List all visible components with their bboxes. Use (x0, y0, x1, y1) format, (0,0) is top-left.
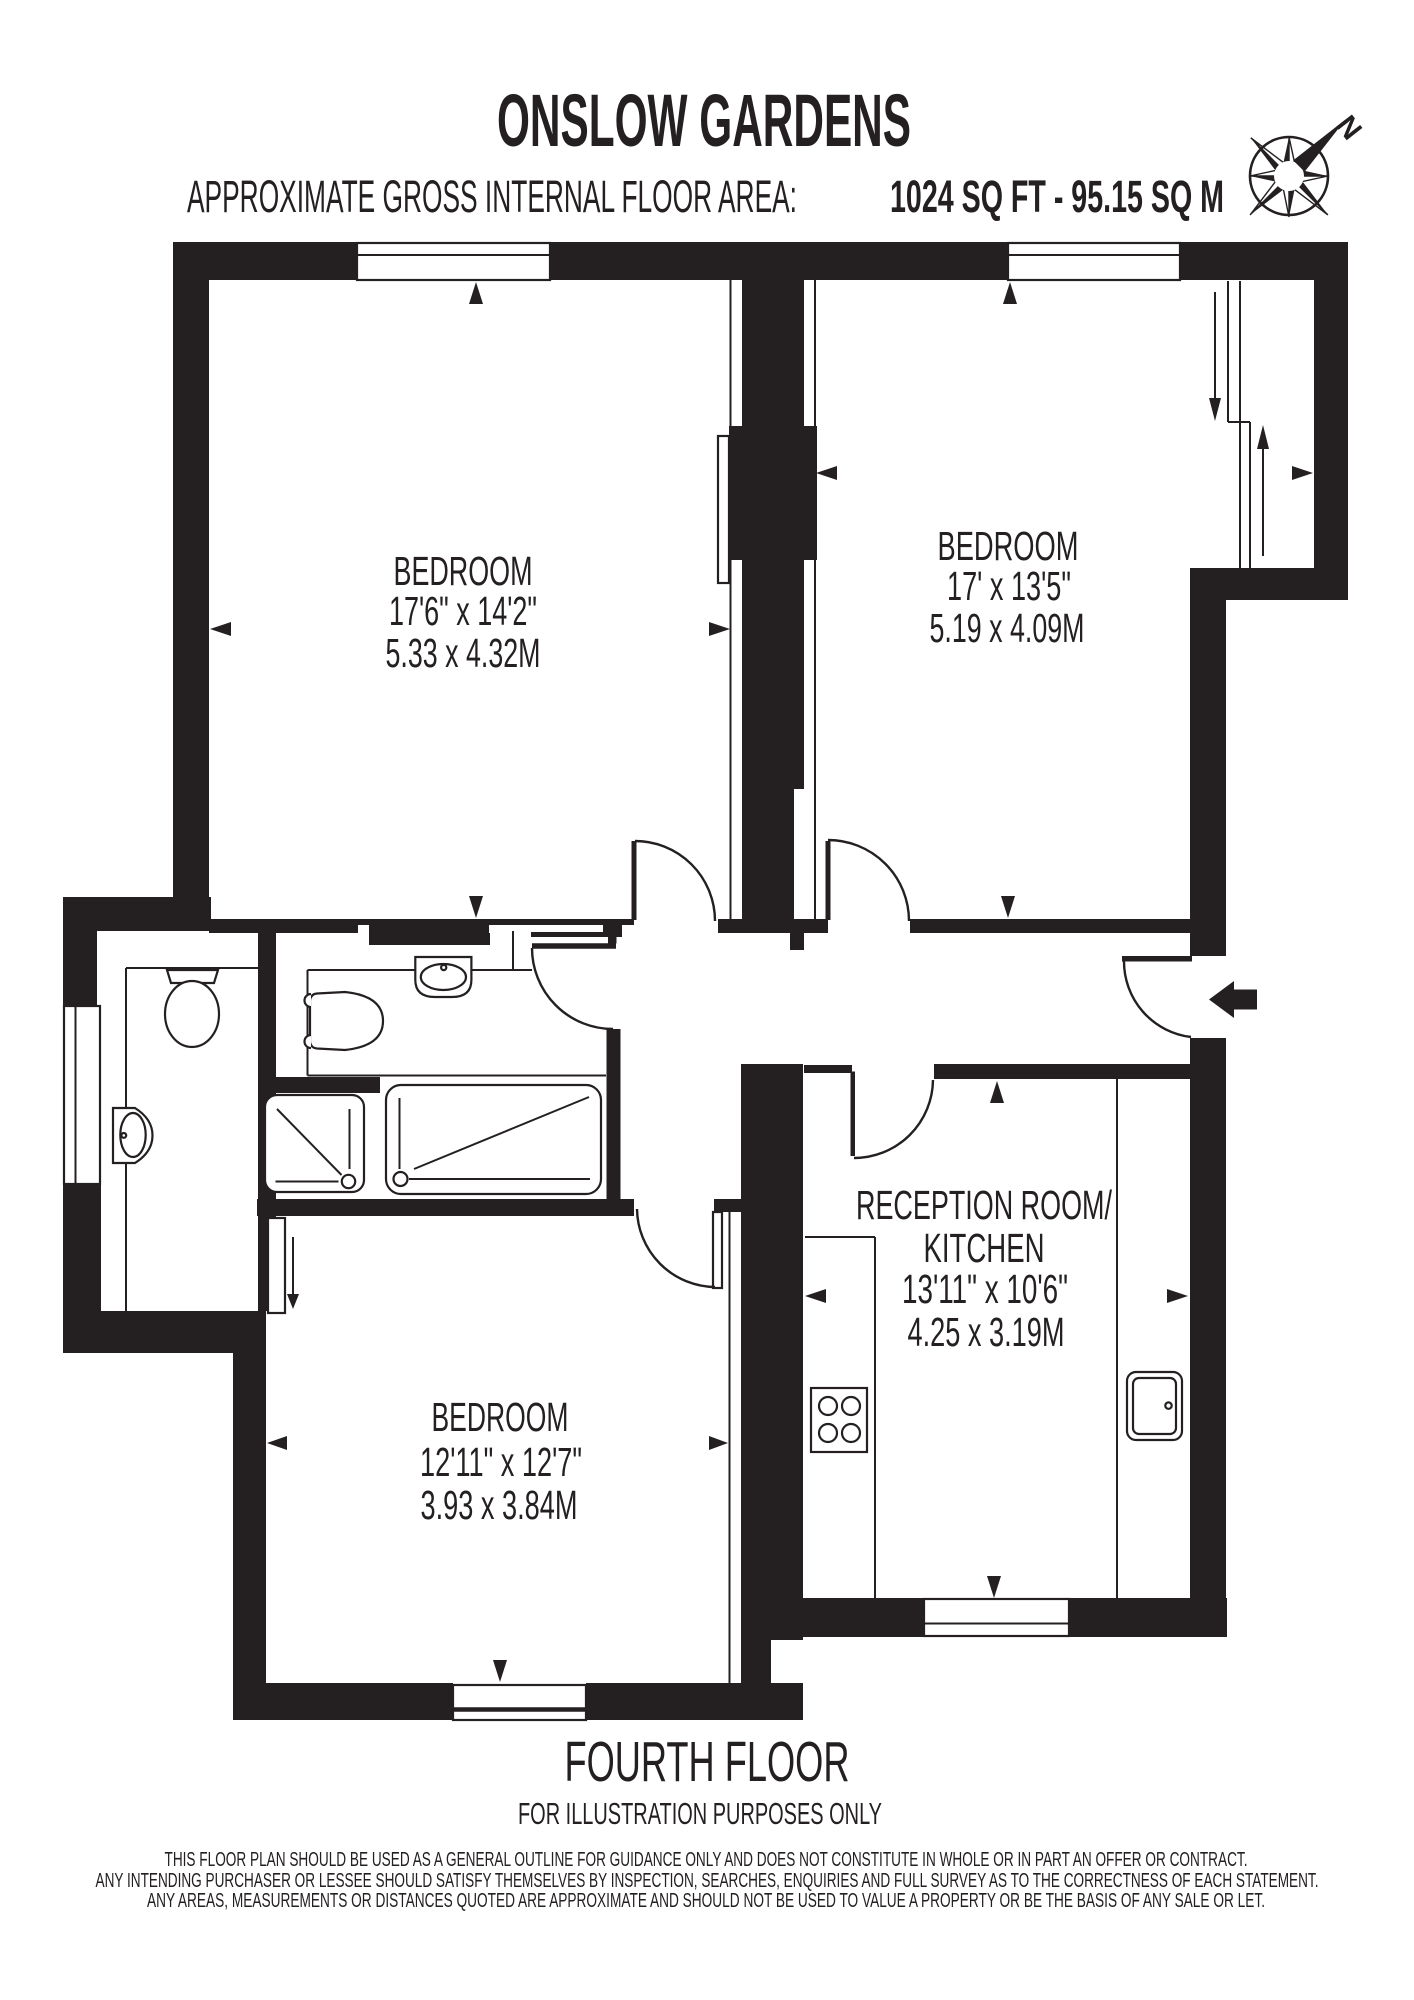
svg-text:17' x 13'5": 17' x 13'5" (947, 563, 1071, 609)
svg-text:BEDROOM: BEDROOM (432, 1394, 569, 1440)
svg-text:1024 SQ FT - 95.15 SQ M: 1024 SQ FT - 95.15 SQ M (890, 171, 1224, 222)
svg-text:5.33 x 4.32M: 5.33 x 4.32M (386, 630, 541, 676)
svg-text:KITCHEN: KITCHEN (924, 1225, 1045, 1271)
svg-text:5.19 x 4.09M: 5.19 x 4.09M (930, 605, 1085, 651)
svg-text:THIS FLOOR PLAN SHOULD BE USED: THIS FLOOR PLAN SHOULD BE USED AS A GENE… (165, 1849, 1248, 1871)
svg-text:3.93 x 3.84M: 3.93 x 3.84M (421, 1482, 578, 1528)
svg-text:4.25 x 3.19M: 4.25 x 3.19M (908, 1309, 1065, 1355)
svg-text:ANY AREAS, MEASUREMENTS OR DIS: ANY AREAS, MEASUREMENTS OR DISTANCES QUO… (147, 1890, 1265, 1912)
svg-text:ANY INTENDING PURCHASER OR LES: ANY INTENDING PURCHASER OR LESSEE SHOULD… (96, 1870, 1319, 1892)
svg-text:FOURTH FLOOR: FOURTH FLOOR (565, 1730, 850, 1794)
svg-text:RECEPTION ROOM/: RECEPTION ROOM/ (856, 1182, 1112, 1228)
svg-text:APPROXIMATE GROSS INTERNAL FLO: APPROXIMATE GROSS INTERNAL FLOOR AREA: (187, 171, 797, 222)
svg-text:FOR ILLUSTRATION PURPOSES ONLY: FOR ILLUSTRATION PURPOSES ONLY (518, 1796, 882, 1831)
svg-text:17'6" x 14'2": 17'6" x 14'2" (389, 588, 537, 634)
svg-text:12'11" x 12'7": 12'11" x 12'7" (420, 1439, 582, 1485)
svg-text:ONSLOW GARDENS: ONSLOW GARDENS (497, 79, 911, 162)
svg-text:13'11" x 10'6": 13'11" x 10'6" (902, 1266, 1068, 1312)
